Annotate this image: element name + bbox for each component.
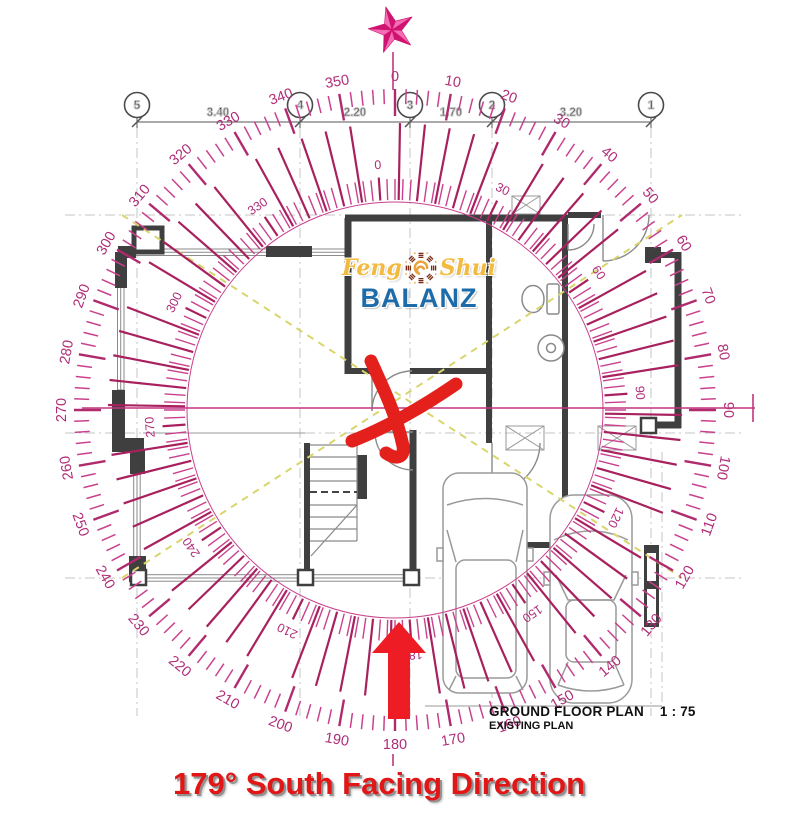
dimension-label: 2.20 (344, 107, 366, 119)
compass-inner-degree-label: 30 (493, 180, 512, 199)
compass-degree-label: 220 (165, 653, 194, 681)
facing-direction-arrow (372, 622, 426, 719)
grid-bubble-label: 5 (134, 98, 141, 112)
logo-word-balanz: BALANZ (342, 283, 496, 314)
bathroom-fixtures (522, 284, 564, 361)
compass-inner-degree-label: 90 (633, 385, 648, 400)
compass-degree-label: 190 (324, 730, 351, 750)
plan-caption: GROUND FLOOR PLAN 1 : 75 EXISTING PLAN (489, 704, 719, 732)
compass-inner-degree-label: 300 (163, 290, 185, 315)
compass-degree-label: 110 (698, 511, 721, 538)
compass-degree-label: 290 (70, 282, 93, 310)
compass-inner-degree-label: 270 (142, 416, 157, 438)
compass-degree-label: 280 (57, 339, 77, 366)
compass-inner-degree-label: 0 (374, 158, 382, 172)
logo-word-feng: Feng (342, 255, 402, 281)
title: 179° South Facing Direction (0, 766, 758, 802)
compass-inner-degree-label: 210 (275, 620, 300, 642)
car-van (437, 473, 533, 693)
compass-degree-label: 170 (440, 730, 467, 750)
north-star-icon (368, 7, 412, 53)
feng-shui-balanz-logo: Feng Shui BALANZ (342, 250, 496, 314)
compass-degree-label: 320 (167, 141, 196, 169)
hatched-boxes (506, 196, 636, 450)
compass-inner-degree-label: 60 (589, 263, 608, 282)
compass-degree-label: 350 (324, 72, 351, 92)
stairs (310, 443, 357, 556)
plan-title: GROUND FLOOR PLAN (489, 704, 644, 719)
grid-bubble-label: 1 (648, 98, 655, 112)
bagua-icon (404, 250, 438, 286)
compass-degree-label: 80 (714, 343, 733, 362)
logo-word-shui: Shui (440, 255, 496, 281)
compass-degree-label: 90 (720, 402, 736, 418)
compass-degree-label: 100 (713, 455, 733, 482)
compass-degree-label: 40 (598, 144, 621, 167)
compass-degree-label: 50 (639, 185, 662, 208)
compass-degree-label: 60 (672, 233, 694, 255)
compass-degree-label: 260 (57, 455, 77, 482)
compass-degree-label: 210 (213, 687, 242, 713)
compass-degree-label: 10 (443, 73, 462, 92)
compass-degree-label: 130 (638, 611, 666, 640)
compass-degree-label: 230 (124, 611, 152, 640)
feng-shui-floorplan-page: 3.402.201.703.20 54321 (0, 0, 800, 840)
compass-degree-label: 200 (266, 713, 294, 736)
compass-inner-degree-label: 240 (180, 535, 203, 560)
grid-bubble-label: 3 (407, 98, 414, 112)
compass-degree-label: 120 (672, 563, 698, 592)
compass-degree-label: 0 (391, 69, 399, 85)
compass-degree-label: 270 (54, 398, 70, 422)
compass-degree-label: 250 (68, 510, 91, 538)
plan-subtitle: EXISTING PLAN (489, 720, 719, 732)
plan-scale: 1 : 75 (660, 704, 696, 719)
compass-degree-label: 310 (126, 182, 154, 211)
compass-degree-label: 240 (92, 563, 118, 592)
compass-degree-label: 180 (383, 737, 407, 753)
toilet-bowl (522, 286, 544, 313)
compass-degree-label: 70 (698, 286, 719, 307)
